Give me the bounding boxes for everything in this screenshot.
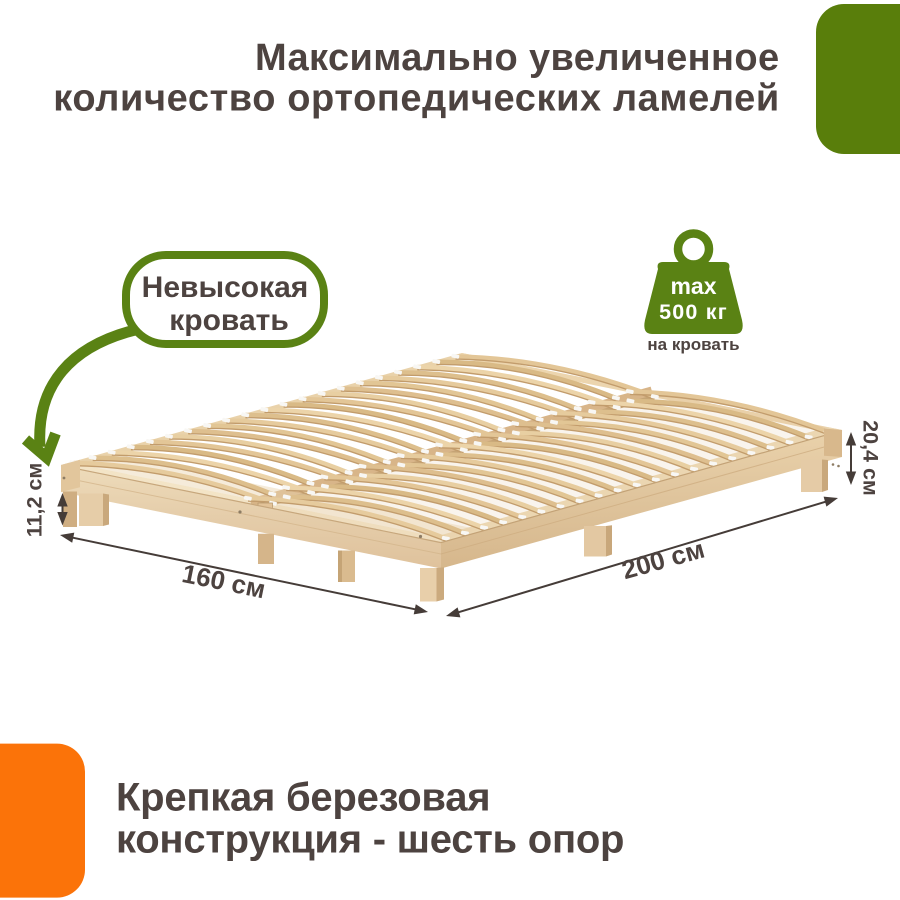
svg-text:Крепкая березовая: Крепкая березовая (116, 776, 490, 820)
svg-text:Невысокая: Невысокая (142, 271, 309, 304)
svg-text:на кровать: на кровать (647, 335, 739, 354)
svg-text:количество ортопедических ламе: количество ортопедических ламелей (53, 78, 780, 120)
svg-text:20,4 см: 20,4 см (858, 420, 882, 496)
svg-text:max: max (670, 273, 716, 299)
svg-text:Максимально увеличенное: Максимально увеличенное (255, 37, 780, 79)
svg-text:кровать: кровать (169, 304, 289, 337)
svg-text:конструкция - шесть опор: конструкция - шесть опор (116, 818, 624, 862)
svg-text:500 кг: 500 кг (659, 300, 728, 324)
svg-text:11,2 см: 11,2 см (23, 463, 47, 538)
